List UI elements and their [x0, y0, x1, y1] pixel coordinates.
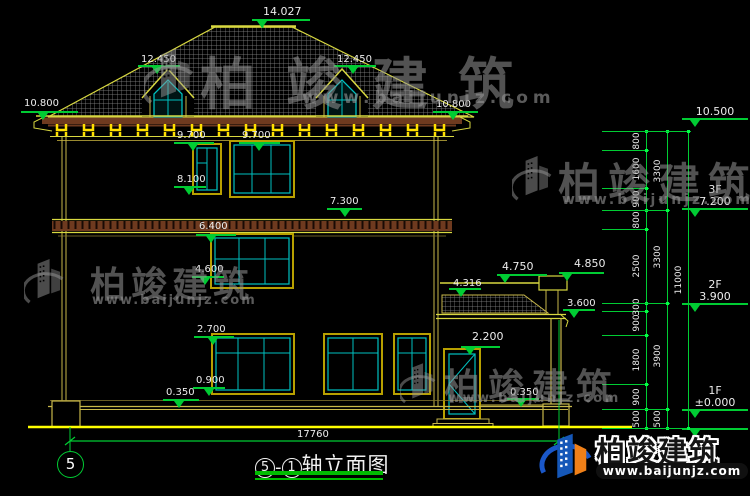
dimension-tick: [666, 302, 669, 305]
title-underline-thin: [255, 478, 383, 480]
elevation-label: 0.900: [196, 376, 225, 386]
elevation-marker-triangle: [348, 67, 358, 74]
elevation-marker-triangle: [569, 311, 579, 318]
storey-elevation-label: ±0.000: [686, 396, 744, 409]
dimension-value: 900: [632, 314, 642, 331]
overall-width-label: 17760: [297, 430, 329, 440]
elevation-marker-triangle: [500, 276, 510, 283]
storey-level-triangle: [690, 120, 700, 127]
elevation-label: 4.750: [502, 261, 534, 272]
dimension-tick: [666, 408, 669, 411]
dimension-tick: [645, 228, 648, 231]
elevation-label: 12.450: [337, 55, 372, 65]
watermark-url: www.baijunjz.com: [448, 391, 621, 406]
storey-level-triangle: [690, 210, 700, 217]
dimension-tick: [645, 310, 648, 313]
elevation-marker-triangle: [254, 144, 264, 151]
dimension-value: 3300: [653, 159, 663, 182]
axis-bubble-5: 5: [57, 451, 84, 478]
elevation-label: 2.700: [197, 325, 226, 335]
elevation-label: 2.200: [472, 331, 504, 342]
elevation-marker-triangle: [340, 210, 350, 217]
elevation-label: 0.350: [166, 388, 195, 398]
watermark-url: www.baijunjz.com: [562, 192, 750, 208]
dimension-extension-line: [602, 384, 649, 385]
dimension-value: 1800: [632, 348, 642, 371]
dimension-extension-line: [602, 229, 649, 230]
dimension-tick: [687, 130, 690, 133]
storey-level-triangle: [690, 305, 700, 312]
dimension-chain-line: [667, 131, 668, 428]
watermark-logo-icon: [144, 38, 194, 114]
watermark-logo-icon: [24, 252, 64, 310]
elevation-marker-triangle: [200, 278, 210, 285]
elevation-label: 6.400: [199, 222, 228, 232]
dimension-value: 800: [632, 132, 642, 149]
elevation-label: 8.100: [177, 175, 206, 185]
elevation-label: 4.600: [195, 265, 224, 275]
elevation-marker-line: [21, 111, 78, 113]
dimension-tick: [645, 383, 648, 386]
dimension-value: 800: [632, 211, 642, 228]
dimension-extension-line: [602, 150, 649, 151]
dimension-value: 3300: [653, 245, 663, 268]
watermark-logo-icon: [512, 148, 552, 208]
elevation-label: 9.700: [242, 131, 271, 141]
cad-elevation-drawing: 14.02712.45012.45010.80010.8009.7009.700…: [0, 0, 750, 496]
dimension-tick: [645, 334, 648, 337]
elevation-marker-triangle: [188, 144, 198, 151]
elevation-marker-triangle: [456, 290, 466, 297]
dimension-extension-line: [602, 303, 670, 304]
elevation-label: 9.700: [177, 131, 206, 141]
dimension-value: 900: [632, 388, 642, 405]
storey-elevation-label: 3.900: [686, 290, 744, 303]
watermark-url: www.baijunjz.com: [302, 88, 556, 108]
elevation-marker-triangle: [448, 113, 458, 120]
elevation-marker-triangle: [562, 274, 572, 281]
elevation-marker-triangle: [184, 188, 194, 195]
watermark-logo-icon: [400, 356, 436, 410]
company-logo-icon: [536, 428, 594, 486]
dimension-value: 11000: [674, 265, 684, 294]
storey-elevation-label: 10.500: [686, 105, 744, 118]
elevation-marker-line: [563, 309, 595, 311]
dimension-extension-line: [602, 210, 670, 211]
dimension-value: 500: [632, 410, 642, 427]
elevation-marker-triangle: [465, 348, 475, 355]
dimension-extension-line: [602, 131, 691, 132]
company-logo-url: www.baijunjz.com: [596, 463, 748, 479]
elevation-marker-triangle: [38, 113, 48, 120]
dimension-tick: [645, 187, 648, 190]
elevation-marker-triangle: [208, 338, 218, 345]
elevation-marker-triangle: [257, 21, 267, 28]
elevation-label: 3.600: [567, 299, 596, 309]
elevation-label: 4.850: [574, 258, 606, 269]
elevation-label: 14.027: [263, 6, 302, 17]
storey-level-triangle: [690, 411, 700, 418]
dimension-extension-line: [602, 188, 649, 189]
dimension-value: 2500: [632, 255, 642, 278]
dimension-chain-line: [688, 131, 689, 428]
dimension-tick: [666, 209, 669, 212]
elevation-label: 10.800: [24, 99, 59, 109]
title-underline-thick: [255, 471, 383, 475]
elevation-marker-line: [196, 234, 236, 236]
elevation-label: 7.300: [330, 197, 359, 207]
elevation-marker-triangle: [174, 401, 184, 408]
dimension-value: 300: [632, 298, 642, 315]
dimension-overlay: 14.02712.45012.45010.80010.8009.7009.700…: [0, 0, 750, 496]
dimension-tick: [645, 149, 648, 152]
elevation-marker-triangle: [206, 236, 216, 243]
elevation-marker-triangle: [204, 389, 214, 396]
dimension-value: 1600: [632, 158, 642, 181]
dimension-value: 3900: [653, 345, 663, 368]
dimension-value: 500: [653, 410, 663, 427]
watermark-url: www.baijunjz.com: [92, 293, 257, 308]
dimension-extension-line: [602, 335, 649, 336]
